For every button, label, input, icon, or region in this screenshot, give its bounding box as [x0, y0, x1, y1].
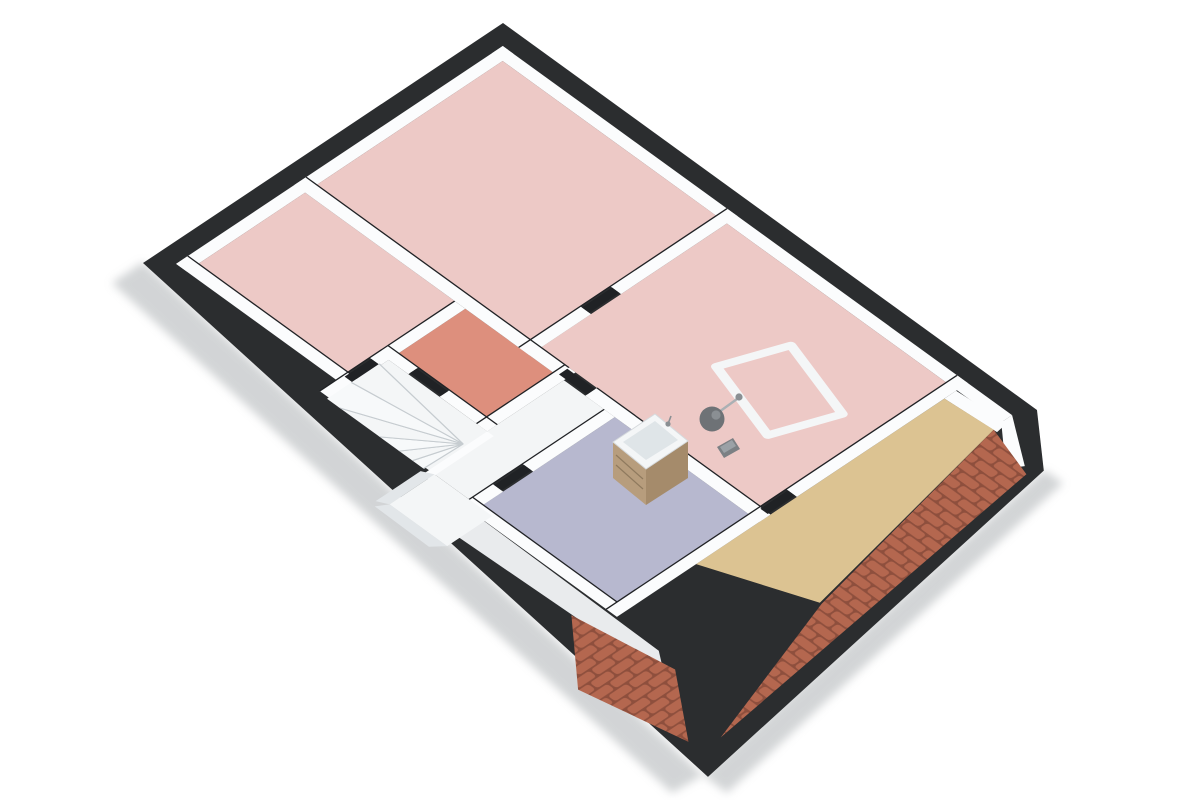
lamp-base — [735, 393, 742, 400]
lamp-shade — [700, 407, 725, 432]
floorplan-3d-render — [0, 0, 1200, 800]
floorplan-canvas — [0, 0, 1200, 800]
lamp-shade-highlight — [711, 410, 720, 419]
iso-plan-group — [63, 23, 1143, 780]
